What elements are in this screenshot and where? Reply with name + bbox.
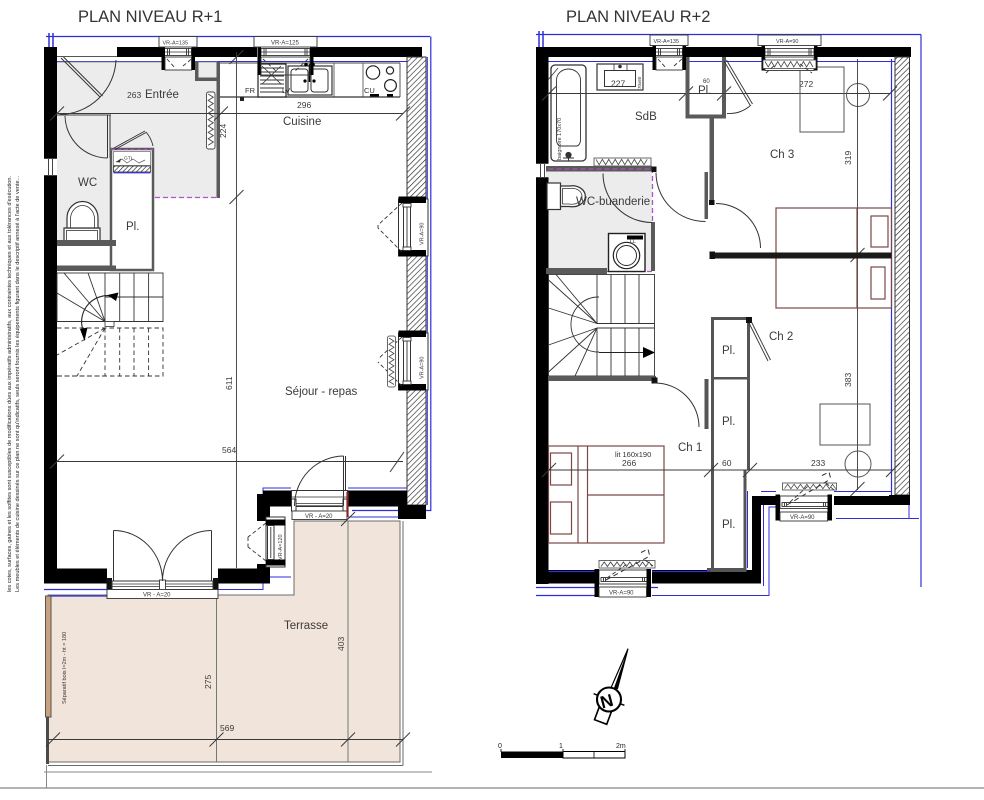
svg-text:WC-buanderie: WC-buanderie xyxy=(576,196,650,208)
svg-text:VR-A=90: VR-A=90 xyxy=(420,223,426,245)
svg-text:Pl.: Pl. xyxy=(722,416,735,428)
svg-text:LL: LL xyxy=(630,239,636,245)
svg-text:Ch 1: Ch 1 xyxy=(678,442,702,454)
svg-text:296: 296 xyxy=(297,100,311,110)
svg-text:Pl.: Pl. xyxy=(722,519,735,531)
svg-text:224: 224 xyxy=(218,124,228,138)
svg-text:les cotes, surfaces, gaines et: les cotes, surfaces, gaines et les soffi… xyxy=(7,175,13,592)
svg-text:383: 383 xyxy=(843,373,853,387)
svg-text:263: 263 xyxy=(127,90,141,100)
svg-text:Séjour - repas: Séjour - repas xyxy=(285,386,357,398)
svg-text:PLAN NIVEAU R+2: PLAN NIVEAU R+2 xyxy=(566,8,710,26)
svg-text:baignoire 170x70: baignoire 170x70 xyxy=(557,118,563,160)
svg-text:VR - A=20: VR - A=20 xyxy=(305,514,333,520)
svg-text:VR-A=120: VR-A=120 xyxy=(278,534,284,560)
svg-text:VR-A=90: VR-A=90 xyxy=(420,357,426,379)
svg-text:Ch 3: Ch 3 xyxy=(770,149,794,161)
svg-text:Ch 2: Ch 2 xyxy=(769,331,793,343)
svg-text:SdB: SdB xyxy=(635,111,657,123)
svg-text:564: 564 xyxy=(222,445,236,455)
svg-text:Entrée: Entrée xyxy=(145,89,179,101)
svg-text:70x60: 70x60 xyxy=(637,76,642,89)
svg-text:227: 227 xyxy=(611,79,625,89)
svg-text:272: 272 xyxy=(799,79,813,89)
svg-text:CU: CU xyxy=(364,86,375,95)
svg-text:LV: LV xyxy=(282,88,290,95)
svg-text:VR - A=20: VR - A=20 xyxy=(143,593,171,599)
svg-text:Séparatif bois l=2m - ht = 180: Séparatif bois l=2m - ht = 180 xyxy=(62,632,68,704)
svg-text:WC: WC xyxy=(78,177,97,189)
svg-text:569: 569 xyxy=(220,723,234,733)
svg-text:611: 611 xyxy=(224,376,234,390)
svg-text:PLAN NIVEAU R+1: PLAN NIVEAU R+1 xyxy=(78,8,222,26)
svg-text:VR-A=125: VR-A=125 xyxy=(271,41,300,47)
svg-text:233: 233 xyxy=(811,458,825,468)
svg-text:VR-A=135: VR-A=135 xyxy=(654,39,680,45)
svg-text:VR-A=90: VR-A=90 xyxy=(790,515,815,521)
svg-text:GTL: GTL xyxy=(124,156,134,162)
svg-text:1: 1 xyxy=(559,743,563,750)
svg-text:266: 266 xyxy=(622,458,636,468)
svg-text:Terrasse: Terrasse xyxy=(284,620,328,632)
svg-text:60: 60 xyxy=(703,79,710,85)
svg-text:FR: FR xyxy=(245,86,256,95)
svg-text:275: 275 xyxy=(203,675,213,689)
svg-text:VR-A=90: VR-A=90 xyxy=(776,39,798,45)
svg-text:VR-A=90: VR-A=90 xyxy=(609,591,634,597)
svg-text:403: 403 xyxy=(336,637,346,651)
svg-text:319: 319 xyxy=(843,151,853,165)
svg-text:0: 0 xyxy=(498,743,502,750)
svg-text:2m: 2m xyxy=(616,743,626,750)
svg-text:Pl.: Pl. xyxy=(722,345,735,357)
svg-text:VR-A=135: VR-A=135 xyxy=(163,41,189,47)
svg-text:Cuisine: Cuisine xyxy=(283,116,321,128)
svg-text:Pl.: Pl. xyxy=(126,221,139,233)
svg-text:60: 60 xyxy=(722,458,732,468)
svg-text:Pl.: Pl. xyxy=(698,85,711,97)
svg-text:Les meubles et éléments de cui: Les meubles et éléments de cuisine dessi… xyxy=(15,175,21,592)
